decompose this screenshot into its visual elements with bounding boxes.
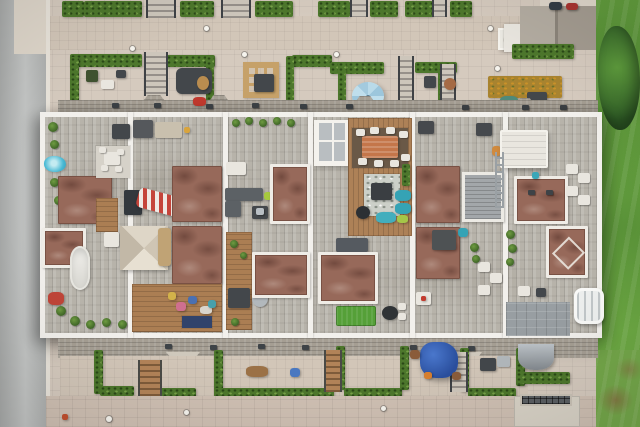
garden-stairs <box>324 350 342 392</box>
planter <box>231 318 239 326</box>
hedge-top-row <box>62 1 84 17</box>
entry-stairs <box>221 0 251 18</box>
grill-lid <box>256 208 264 215</box>
parked-car <box>549 2 562 10</box>
garden-hedge <box>100 386 134 396</box>
roof-block <box>172 226 222 284</box>
red-chair <box>48 292 64 305</box>
planter <box>259 119 267 127</box>
clay-pot <box>452 372 461 380</box>
ac-unit <box>104 232 119 247</box>
planter <box>273 117 281 125</box>
storage-box <box>418 121 434 134</box>
garden-hedge <box>70 57 79 103</box>
kiddie-pool <box>44 156 66 172</box>
roof-vent <box>560 105 567 110</box>
wicker-basket <box>197 76 209 90</box>
white-chair <box>490 273 502 283</box>
kayak <box>70 246 90 290</box>
hedge-top-row <box>318 1 350 17</box>
plant-trellis <box>402 164 410 186</box>
dining-table-orange <box>362 136 398 158</box>
garden-hedge <box>400 346 409 390</box>
garden-hedge <box>292 55 332 67</box>
garden-grill <box>424 76 436 88</box>
planter <box>48 122 58 132</box>
scene-aerial-photo <box>0 0 640 427</box>
slate-tiles <box>506 302 570 336</box>
garden-stairs <box>138 360 162 396</box>
garden-hedge <box>286 56 294 101</box>
entry-stairs <box>350 0 368 17</box>
white-chair <box>566 164 578 174</box>
roof-vent <box>462 105 469 110</box>
hedge-top-row <box>84 1 142 17</box>
garden-hedge <box>70 54 142 67</box>
deck-boards <box>96 198 118 232</box>
ladder <box>495 152 504 208</box>
turf-patch <box>336 306 376 326</box>
lounge-chair <box>398 303 406 310</box>
dining-chair <box>401 154 410 161</box>
planter <box>56 306 66 316</box>
hedge-top-row <box>180 1 214 17</box>
putty-table <box>155 122 182 138</box>
patio-chair <box>117 149 124 155</box>
garden-chair <box>101 80 114 89</box>
lamp-post <box>130 46 135 51</box>
terrace-partition <box>308 112 313 338</box>
lamp-post <box>488 26 493 31</box>
roof-vent <box>528 190 535 195</box>
roof-vent <box>300 104 307 109</box>
toy-pink <box>176 302 186 311</box>
planter <box>287 119 295 127</box>
storage-box <box>536 288 546 297</box>
roof-vent <box>206 104 213 109</box>
hedge-top-row <box>405 1 433 17</box>
toy-yellow <box>168 292 176 300</box>
storage-box <box>133 120 153 138</box>
hydrant <box>62 414 68 420</box>
dining-chair <box>374 160 383 167</box>
wood-bench <box>246 366 268 377</box>
planter <box>240 252 247 259</box>
hedge-top-row <box>450 1 472 17</box>
planter <box>506 230 515 239</box>
teal-sofa <box>376 212 396 223</box>
roof-vent <box>546 190 553 195</box>
lamp-post <box>495 66 500 71</box>
lamp-post <box>334 52 339 57</box>
hedge-top-row <box>370 1 398 17</box>
patio-chair <box>101 165 108 171</box>
coffee-table <box>371 183 392 200</box>
planter <box>118 320 127 329</box>
planter <box>232 119 240 127</box>
hot-tub <box>574 288 604 324</box>
white-chair <box>578 173 590 183</box>
patio-chair <box>115 166 122 172</box>
roof-vent <box>468 346 475 351</box>
sectional-sofa <box>225 188 263 201</box>
white-canopy <box>500 130 548 168</box>
orange-item <box>424 372 432 379</box>
roof-vent <box>258 344 265 349</box>
roof-block <box>416 166 460 223</box>
cedar-deck <box>226 232 252 330</box>
pergola-grill <box>254 74 274 92</box>
lamp-post <box>204 26 209 31</box>
lounge-chair <box>398 313 406 320</box>
dining-chair <box>356 129 365 136</box>
appliance <box>228 288 250 308</box>
side-table <box>518 286 530 296</box>
teal-chair <box>395 203 411 214</box>
roof-vent <box>522 105 529 110</box>
roof-block roof-brb <box>514 176 568 224</box>
teal-bin <box>458 228 468 237</box>
roof-vent <box>252 103 259 108</box>
navy-rug <box>182 316 212 328</box>
white-chair <box>478 285 490 295</box>
planter <box>245 117 253 125</box>
teal-chair <box>395 190 411 201</box>
toy-lime <box>397 215 408 223</box>
dining-chair <box>386 127 395 134</box>
roof-block-diamond <box>546 226 588 278</box>
entry-stairs <box>432 0 447 17</box>
sidewalk-panel <box>14 0 46 54</box>
planter <box>506 258 514 266</box>
stair-grate <box>520 394 572 406</box>
dining-chair <box>399 131 408 138</box>
garden-stairs <box>398 56 414 104</box>
toy-gold <box>184 127 190 133</box>
round-bbq <box>356 206 370 219</box>
planter <box>70 316 80 326</box>
white-chair <box>478 262 490 272</box>
toy-teal <box>208 300 216 308</box>
garden-furniture <box>116 70 126 78</box>
white-bench <box>226 162 246 175</box>
planter <box>102 318 111 327</box>
entry-stairs <box>146 0 176 18</box>
teal-can <box>532 172 539 179</box>
dining-chair <box>370 127 379 134</box>
round-table <box>382 306 398 320</box>
blue-item <box>290 368 300 377</box>
garden-stairs <box>144 52 168 96</box>
roof-vent <box>302 345 309 350</box>
garden-furniture <box>86 70 98 82</box>
planter <box>50 140 59 149</box>
white-chair <box>566 186 578 196</box>
entrance-planter <box>512 44 574 59</box>
dining-chair <box>358 158 367 165</box>
walkway-light <box>381 406 386 411</box>
walkway-light <box>184 410 189 415</box>
lawn-southeast <box>596 350 640 427</box>
planter <box>472 255 480 263</box>
garden-grill <box>480 358 496 371</box>
roof-vent <box>165 344 172 349</box>
glass-canopy <box>314 120 348 166</box>
roof-vent <box>112 103 119 108</box>
planter <box>470 243 479 252</box>
roof-vent <box>154 103 161 108</box>
white-chair <box>578 195 590 205</box>
parked-car <box>566 3 578 10</box>
grill-lid <box>497 356 510 367</box>
storage-box <box>112 124 130 139</box>
storage-box <box>336 238 368 252</box>
storage-box <box>476 123 492 136</box>
dark-sofa <box>432 230 456 250</box>
roof-vent <box>346 104 353 109</box>
hedge-top-row <box>255 1 293 17</box>
toy-red <box>421 296 426 301</box>
curved-shed-roof <box>518 344 554 370</box>
clay-pot <box>410 350 420 359</box>
planter <box>230 240 238 248</box>
roof-block roof-brb <box>252 252 310 298</box>
planter <box>508 244 517 253</box>
walkway-light <box>106 416 112 422</box>
lamp-post <box>242 52 247 57</box>
red-object <box>193 97 206 106</box>
garden-hedge <box>516 372 570 384</box>
terracotta-pot <box>444 78 456 90</box>
toy-blue <box>188 296 197 304</box>
roof-block roof-brb <box>318 252 378 304</box>
patio-chair <box>99 147 106 153</box>
dining-chair <box>390 160 399 167</box>
roof-block <box>172 166 222 222</box>
garden-hedge <box>214 350 223 392</box>
wood-cabinet <box>158 228 171 266</box>
flowering-hedge <box>488 76 562 98</box>
roof-block roof-brb <box>270 164 310 224</box>
sectional-sofa <box>225 201 241 217</box>
planter <box>86 320 95 329</box>
